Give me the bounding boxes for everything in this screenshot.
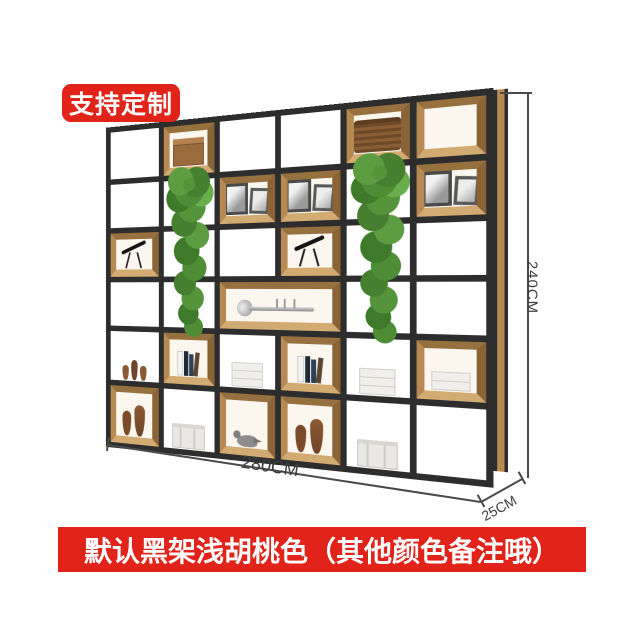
- decor-cardboard-box: [173, 137, 204, 167]
- decor-paper-stack: [431, 373, 470, 393]
- shelf-cell: [111, 182, 159, 228]
- decor-picture-frames: [422, 169, 479, 207]
- shelf-cell: [281, 397, 340, 466]
- shelf-cell: [164, 122, 215, 176]
- shelf-cell: [417, 282, 486, 336]
- shelf-cell: [164, 230, 215, 276]
- shelf-cell: [346, 224, 410, 276]
- decor-picture-frames: [286, 178, 335, 213]
- decor-ceramic-vases: [123, 404, 145, 437]
- shelf-cell: [111, 385, 159, 446]
- decor-white-vase: [182, 296, 195, 327]
- decor-white-vase: [370, 298, 386, 332]
- shelf-cell: [417, 340, 486, 403]
- decor-metal-trunk: [358, 439, 399, 470]
- shelf-cell: [220, 228, 275, 276]
- shelf-cell: [281, 170, 340, 222]
- color-note-banner: 默认黑架浅胡桃色（其他颜色备注哦）: [58, 527, 586, 572]
- decor-trumpet: [237, 297, 319, 320]
- color-note-banner-label: 默认黑架浅胡桃色（其他颜色备注哦）: [84, 530, 560, 570]
- shelf-cell: [417, 161, 486, 217]
- depth-dimension-tick: [518, 472, 526, 485]
- shelf-cell: [220, 393, 275, 459]
- height-dimension-tick: [500, 92, 532, 94]
- shelf-cell: [220, 282, 340, 332]
- decor-telescope: [288, 236, 332, 267]
- decor-metal-trunk: [173, 423, 206, 451]
- decor-ceramic-vases: [296, 417, 324, 454]
- shelf-cell: [111, 128, 159, 180]
- decor-books: [178, 351, 199, 377]
- decor-pigeon-figurine: [237, 434, 257, 448]
- shelf-cell: [346, 338, 410, 398]
- height-dimension-label: 240CM: [524, 261, 541, 315]
- decor-picture-frames: [224, 182, 269, 216]
- shelf-cell: [417, 95, 486, 158]
- decor-paper-stack: [232, 363, 263, 388]
- customization-badge-label: 支持定制: [69, 85, 173, 121]
- customization-badge: 支持定制: [62, 84, 180, 122]
- shelf-cell: [417, 221, 486, 275]
- shelf-cell: [111, 282, 159, 327]
- shelf-cell: [164, 333, 215, 387]
- shelf-cell: [346, 282, 410, 334]
- shelf-cell: [281, 110, 340, 168]
- shelf-cell: [220, 116, 275, 172]
- product-shelf-image: [106, 88, 493, 482]
- shelf-cell: [281, 226, 340, 276]
- shelf-grid: [106, 88, 493, 488]
- decor-books: [297, 356, 322, 384]
- shelf-cell: [111, 232, 159, 277]
- shelf-cell: [281, 336, 340, 394]
- shelf-cell: [220, 174, 275, 224]
- decor-small-vases: [122, 360, 146, 381]
- decor-paper-stack: [360, 369, 396, 396]
- shelf-cell: [220, 334, 275, 390]
- shelf-cell: [111, 331, 159, 383]
- shelf-cell: [164, 389, 215, 453]
- shelf-cell: [417, 406, 486, 481]
- shelf-cell: [164, 282, 215, 328]
- shelf-cell: [346, 103, 410, 164]
- decor-telescope: [116, 241, 152, 269]
- decor-wicker-basket: [354, 117, 401, 154]
- depth-dimension-label: 25CM: [476, 490, 522, 525]
- shelf-cell: [346, 401, 410, 473]
